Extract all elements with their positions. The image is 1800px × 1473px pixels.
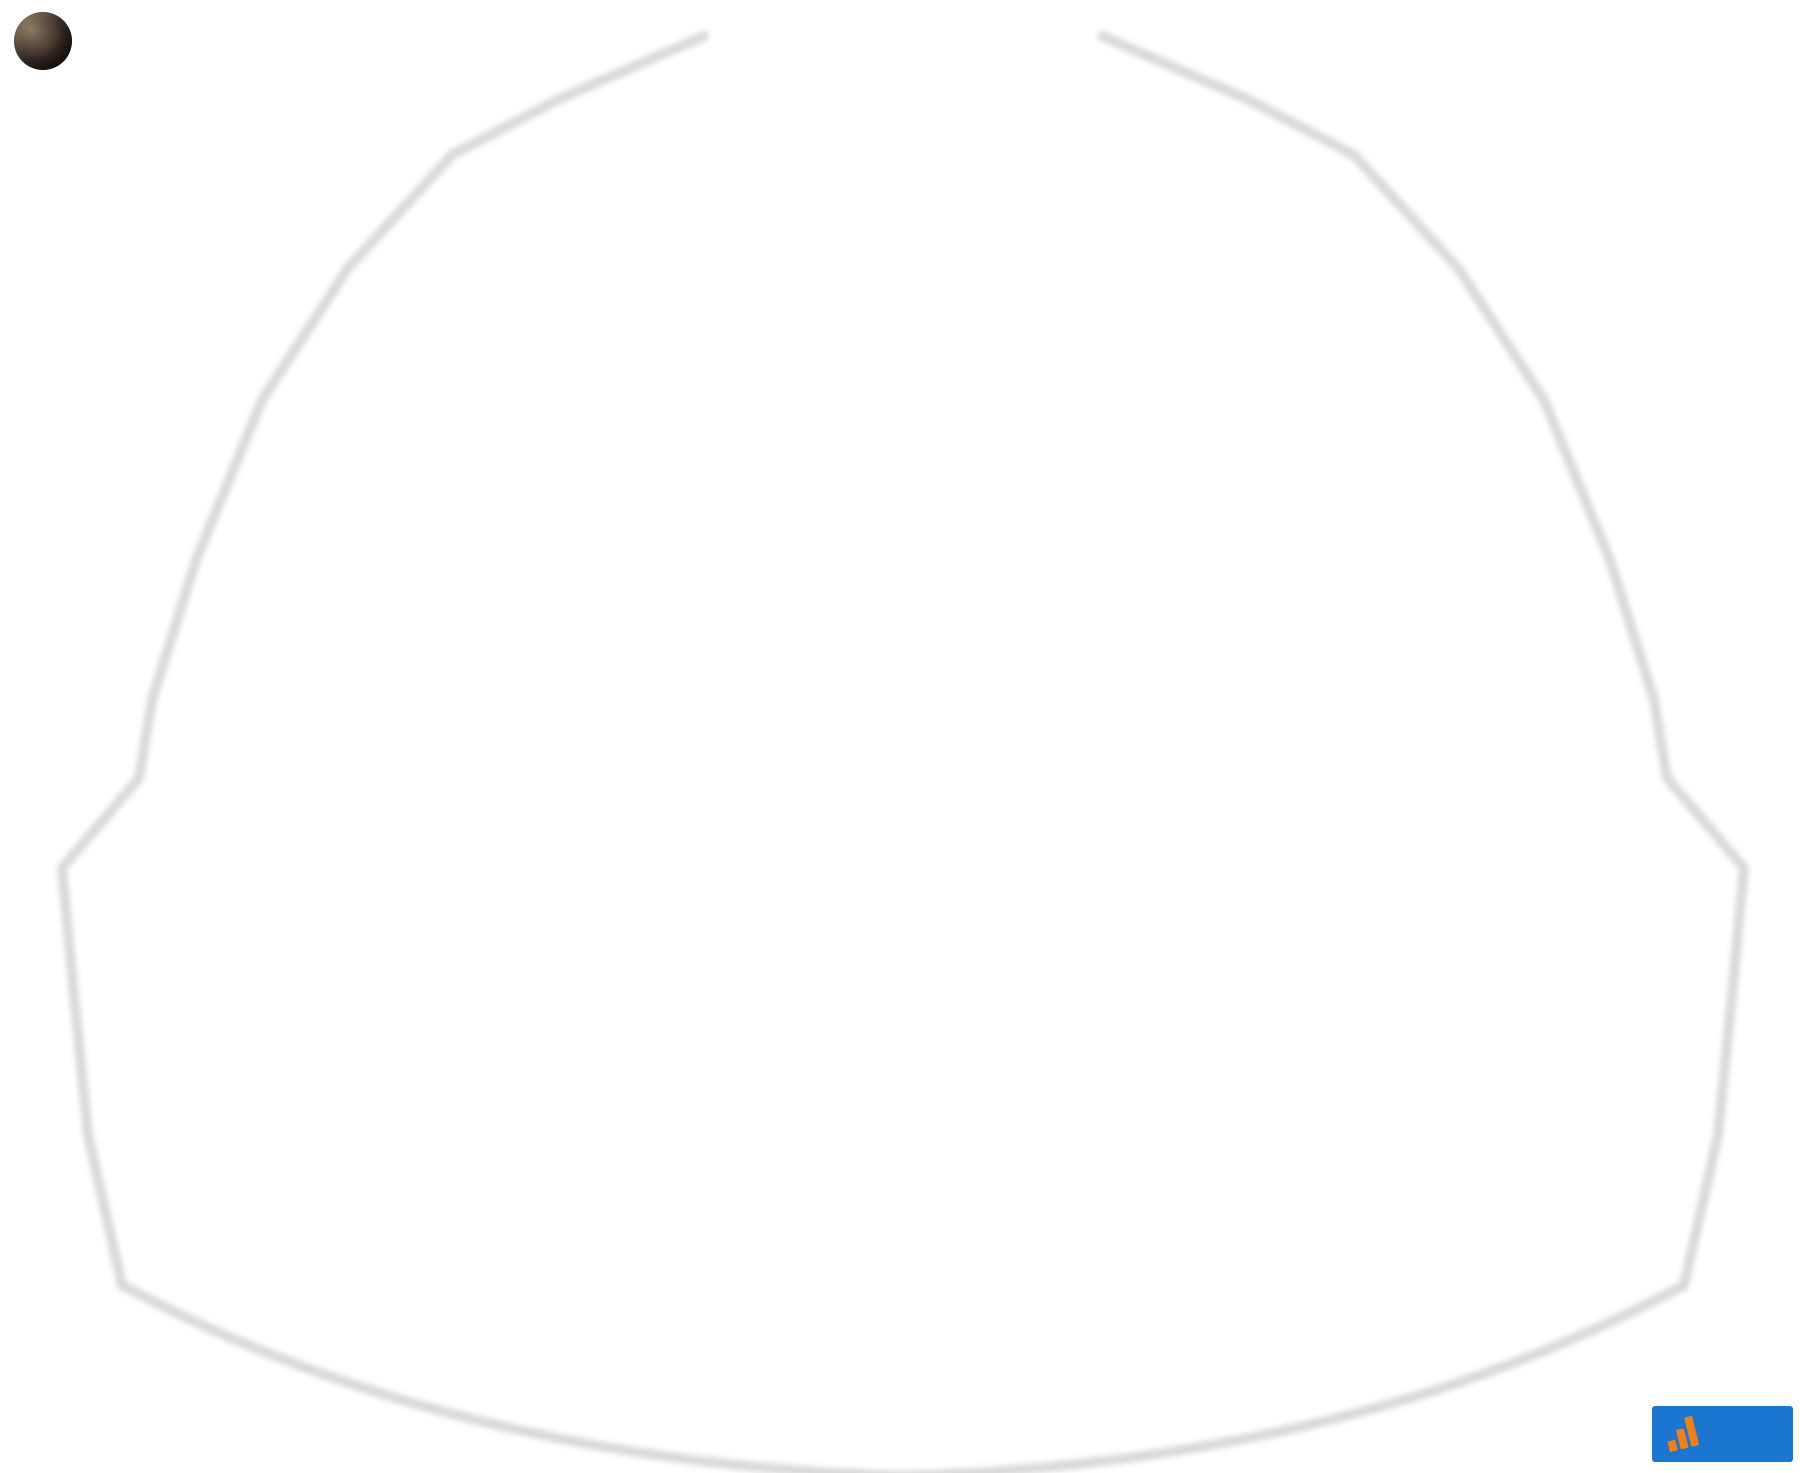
seating-chart-page	[0, 0, 1800, 1473]
artist-avatar	[14, 12, 72, 70]
header	[14, 12, 84, 70]
venue-outline	[62, 36, 1744, 1473]
rateyourseats-logo	[1652, 1406, 1793, 1462]
bar-chart-icon	[1663, 1416, 1699, 1452]
seat-map	[0, 0, 1800, 1473]
